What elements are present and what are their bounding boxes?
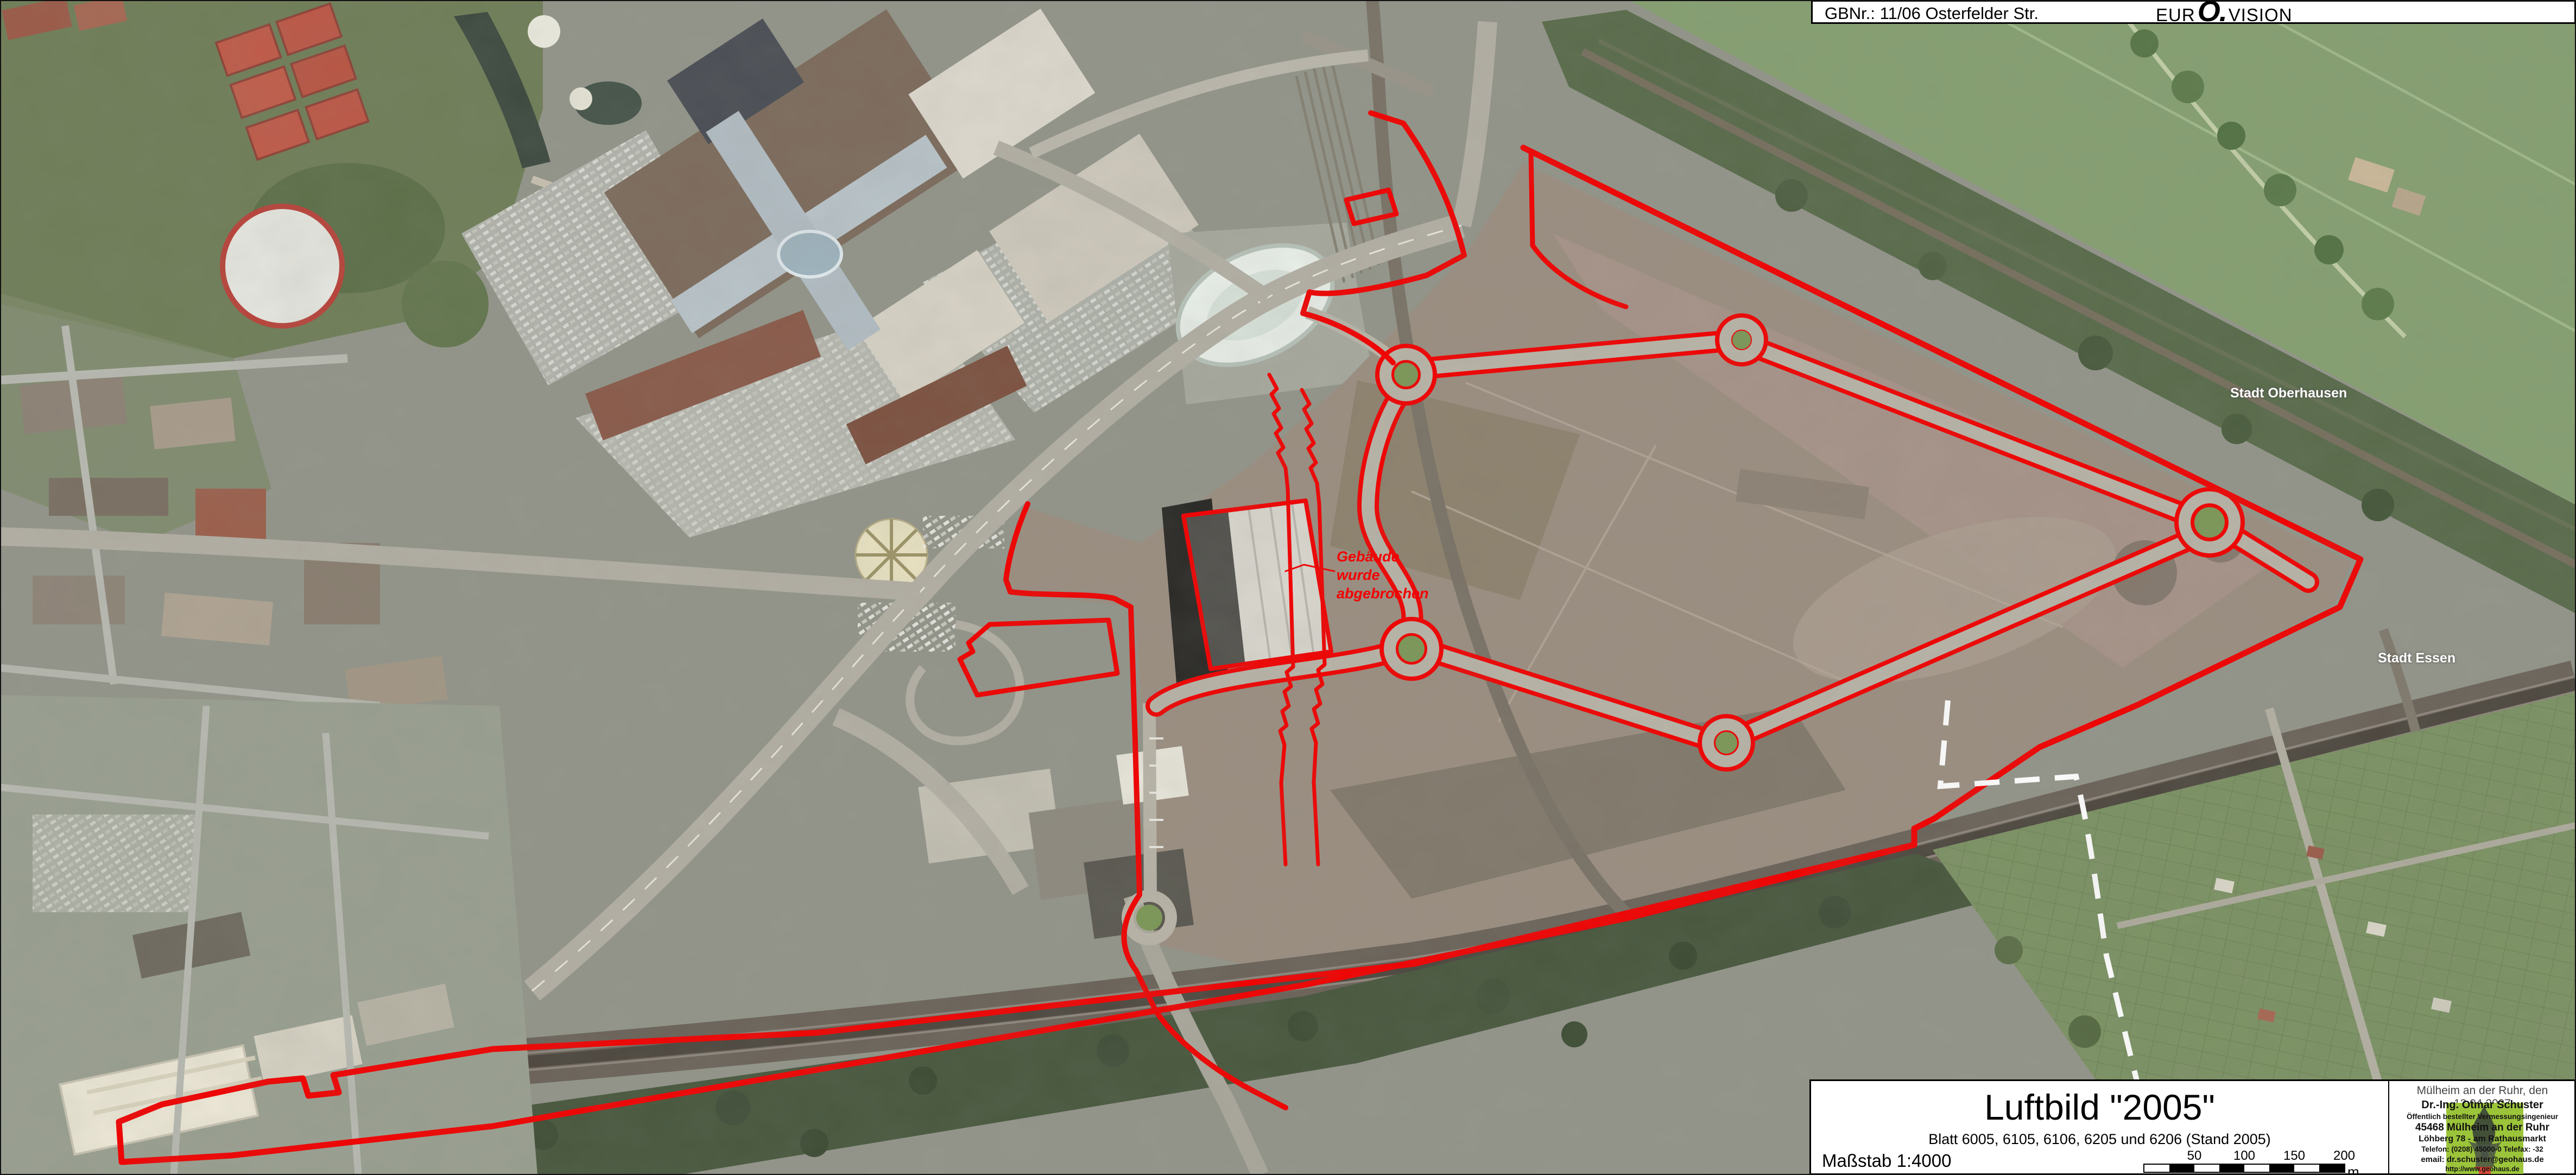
scale-bar-segment	[2269, 1165, 2294, 1172]
surveyor-address1: 45468 Mülheim an der Ruhr	[2389, 1121, 2575, 1134]
surveyor-name: Dr.-Ing. Otmar Schuster	[2389, 1098, 2575, 1112]
scale-bar-segment	[2319, 1165, 2344, 1172]
logo-text-eur: EUR	[2156, 5, 2195, 26]
surveyor-email: email: dr.schuster@geohaus.de	[2389, 1154, 2575, 1165]
surveyor-contact-block: Dr.-Ing. Otmar Schuster Öffentlich beste…	[2389, 1098, 2575, 1173]
scale-bar-segment	[2169, 1165, 2194, 1172]
map-sheet: Stadt Oberhausen Stadt Essen Gebäude wur…	[0, 0, 2576, 1175]
scale-bar-segment	[2219, 1165, 2244, 1172]
scale-bar-segment	[2194, 1165, 2219, 1172]
label-stadt-oberhausen: Stadt Oberhausen	[2230, 386, 2347, 401]
scale-tick-150: 150	[2283, 1148, 2305, 1164]
logo-text-o: O.	[2198, 2, 2226, 21]
scale-unit: m	[2347, 1164, 2359, 1175]
title-block-left: Luftbild "2005" Blatt 6005, 6105, 6106, …	[1811, 1081, 2388, 1173]
surveyor-phone: Telefon: (0208) 45000-0 Telefax: -32	[2389, 1145, 2575, 1154]
gbnr-title: GBNr.: 11/06 Osterfelder Str.	[1825, 4, 2039, 23]
logo-text-vision: VISION	[2229, 5, 2293, 26]
scale-bar-segment	[2294, 1165, 2319, 1172]
scale-bar-segment	[2144, 1165, 2169, 1172]
scale-tick-200: 200	[2333, 1148, 2355, 1164]
map-title: Luftbild "2005"	[1811, 1086, 2388, 1128]
title-block: Luftbild "2005" Blatt 6005, 6105, 6106, …	[1809, 1079, 2576, 1175]
surveyor-title: Öffentlich bestellter Vermessungsingenie…	[2389, 1112, 2575, 1121]
scale-bar-segment	[2244, 1165, 2269, 1172]
scale-tick-50: 50	[2187, 1148, 2202, 1164]
surveyor-web: http://www.geohaus.de	[2389, 1165, 2575, 1173]
scale-tick-100: 100	[2233, 1148, 2255, 1164]
eurovision-logo: EUR O. VISION	[2156, 2, 2293, 22]
title-block-right: Mülheim an der Ruhr, den 12.04.2007 Dr.-…	[2388, 1081, 2575, 1173]
header-bar: GBNr.: 11/06 Osterfelder Str. EUR O. VIS…	[1811, 0, 2576, 24]
photo-grain	[0, 0, 2576, 1175]
scale-bar: 50 100 150 200	[2143, 1164, 2345, 1173]
map-subtitle: Blatt 6005, 6105, 6106, 6205 und 6206 (S…	[1811, 1131, 2388, 1148]
annotation-building-demolished: Gebäude wurde abgebrochen	[1337, 547, 1429, 603]
surveyor-address2: Löhberg 78 - am Rathausmarkt	[2389, 1134, 2575, 1145]
aerial-photo	[0, 0, 2576, 1175]
scale-label: Maßstab 1:4000	[1822, 1151, 1951, 1171]
label-stadt-essen: Stadt Essen	[2378, 650, 2455, 666]
